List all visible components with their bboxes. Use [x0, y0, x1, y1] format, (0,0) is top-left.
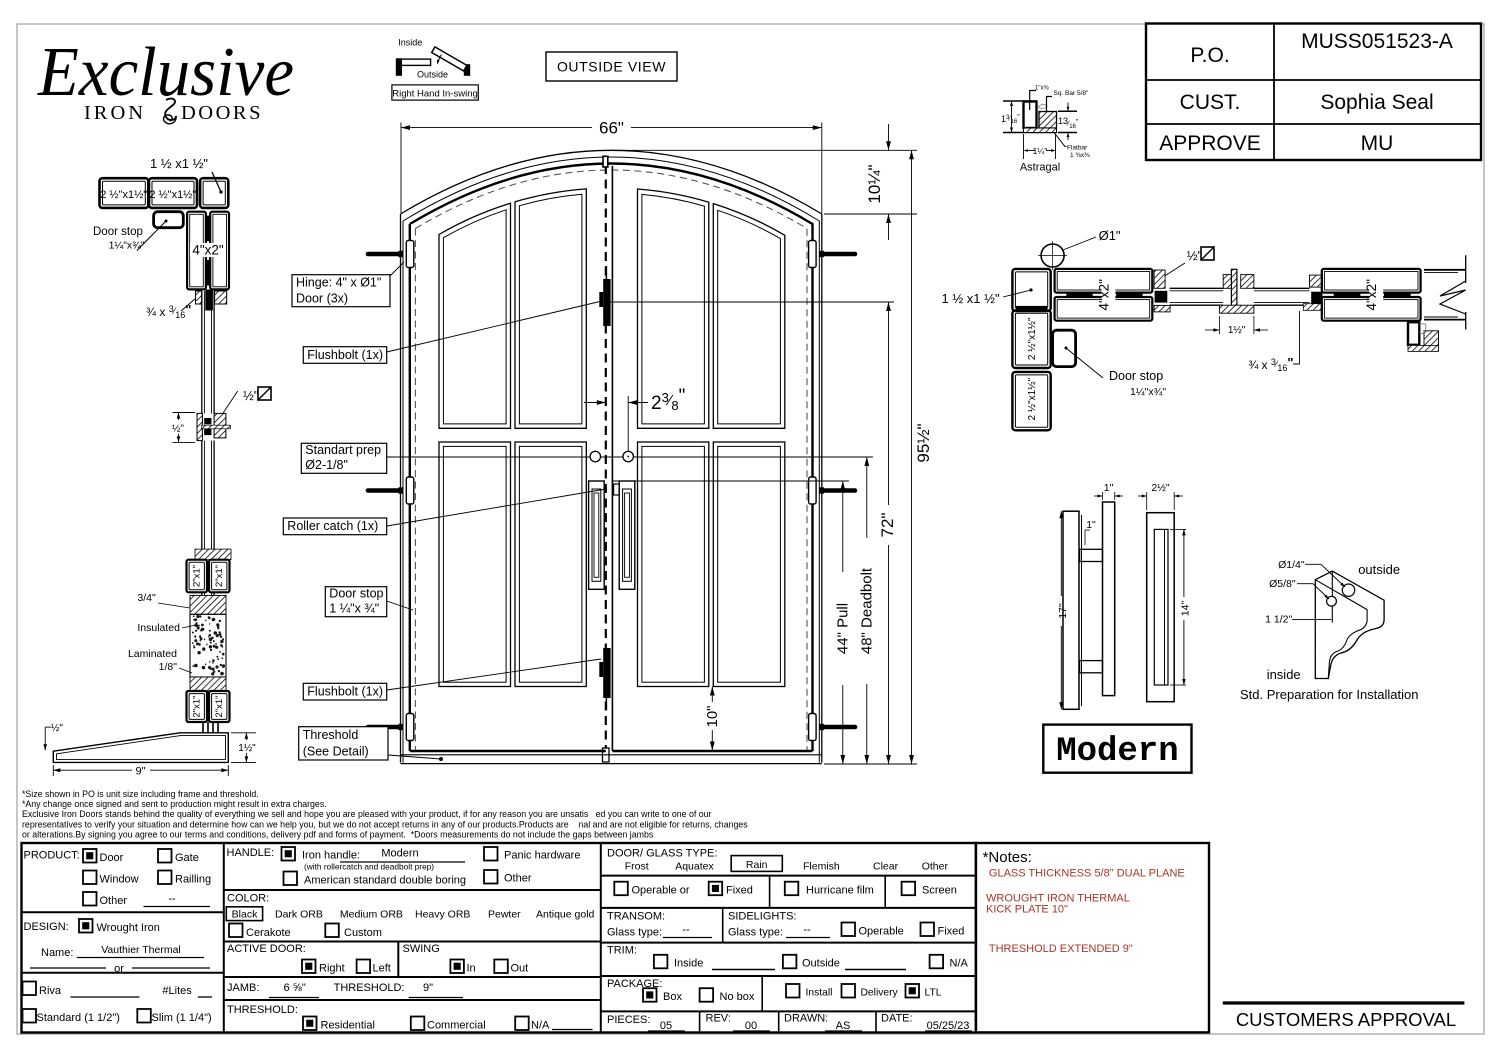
svg-text:Ø1/4": Ø1/4" — [1278, 559, 1305, 571]
svg-text:Hinge: 4" x Ø1": Hinge: 4" x Ø1" — [296, 275, 381, 289]
svg-text:2 ½"x1½": 2 ½"x1½" — [1027, 377, 1038, 420]
svg-text:*Any change once signed and se: *Any change once signed and sent to prod… — [22, 799, 327, 809]
svg-text:1 1/2": 1 1/2" — [1265, 614, 1292, 626]
svg-text:Outside: Outside — [417, 70, 448, 80]
svg-text:American standard double borin: American standard double boring — [304, 875, 466, 887]
svg-text:Roller catch (1x): Roller catch (1x) — [287, 519, 378, 533]
svg-text:OUTSIDE VIEW: OUTSIDE VIEW — [557, 59, 666, 75]
svg-text:inside: inside — [1267, 667, 1301, 682]
svg-text:Outside: Outside — [802, 958, 840, 970]
svg-text:Left: Left — [373, 963, 391, 975]
svg-text:½": ½" — [51, 723, 63, 734]
svg-text:Clear: Clear — [873, 861, 899, 873]
svg-text:Gate: Gate — [175, 852, 199, 864]
svg-text:Cerakote: Cerakote — [246, 927, 291, 939]
svg-text:Install: Install — [806, 988, 833, 999]
svg-text:Aquatex: Aquatex — [675, 861, 714, 873]
svg-text:COLOR:: COLOR: — [227, 893, 269, 905]
svg-text:1": 1" — [1104, 482, 1114, 494]
svg-text:THRESHOLD EXTENDED 9": THRESHOLD EXTENDED 9" — [989, 943, 1133, 955]
svg-text:KICK PLATE 10": KICK PLATE 10" — [986, 904, 1068, 916]
svg-text:Standard (1 1/2"): Standard (1 1/2") — [37, 1012, 120, 1024]
svg-text:05/25/23: 05/25/23 — [927, 1020, 970, 1032]
svg-text:Commercial: Commercial — [427, 1020, 486, 1032]
svg-text:(See Detail): (See Detail) — [303, 745, 369, 759]
svg-text:1"x⅜: 1"x⅜ — [1035, 86, 1049, 92]
svg-text:72": 72" — [878, 513, 897, 538]
svg-text:N/A: N/A — [531, 1020, 550, 1032]
svg-text:1¼"x¾": 1¼"x¾" — [1130, 386, 1166, 398]
svg-text:10": 10" — [704, 705, 721, 727]
svg-text:Name:: Name: — [41, 947, 73, 959]
svg-text:Inside: Inside — [674, 958, 703, 970]
svg-text:Right Hand In-swing: Right Hand In-swing — [392, 88, 478, 99]
svg-text:3/4": 3/4" — [137, 592, 156, 604]
svg-text:or: or — [114, 963, 124, 975]
svg-text:Fixed: Fixed — [726, 885, 753, 897]
svg-text:1¼"x¾": 1¼"x¾" — [109, 240, 145, 252]
svg-text:Rain: Rain — [746, 859, 768, 871]
svg-text:1½": 1½" — [238, 743, 256, 754]
svg-text:Frost: Frost — [625, 861, 649, 873]
svg-text:Glass type:: Glass type: — [607, 927, 662, 939]
svg-text:Vauthier Thermal: Vauthier Thermal — [101, 944, 181, 956]
svg-text:Ø2-1/8": Ø2-1/8" — [305, 458, 348, 472]
svg-text:2"x1": 2"x1" — [214, 565, 225, 587]
svg-text:2"x1": 2"x1" — [214, 695, 225, 717]
svg-text:Dark ORB: Dark ORB — [275, 908, 323, 920]
svg-text:1 ½ x1 ½": 1 ½ x1 ½" — [150, 156, 208, 171]
svg-text:Door stop: Door stop — [93, 226, 143, 238]
svg-text:Astragal: Astragal — [1020, 162, 1060, 174]
svg-text:ACTIVE DOOR:: ACTIVE DOOR: — [227, 943, 306, 955]
svg-text:2 ½"x1½": 2 ½"x1½" — [149, 189, 196, 201]
svg-text:APPROVE: APPROVE — [1159, 132, 1261, 155]
svg-text:*Notes:: *Notes: — [983, 849, 1032, 866]
svg-text:Hurricane film: Hurricane film — [806, 885, 874, 897]
svg-text:CUST.: CUST. — [1180, 91, 1241, 114]
svg-text:14": 14" — [1180, 601, 1192, 617]
svg-text:1½": 1½" — [1228, 325, 1246, 336]
svg-text:THRESHOLD:: THRESHOLD: — [227, 1004, 298, 1016]
svg-text:6 ⅝": 6 ⅝" — [284, 982, 306, 994]
svg-text:4"x2": 4"x2" — [1096, 279, 1111, 311]
svg-text:LTL: LTL — [925, 988, 942, 999]
svg-text:Delivery: Delivery — [861, 988, 899, 999]
svg-text:No box: No box — [720, 991, 755, 1003]
svg-text:--: -- — [803, 924, 811, 936]
svg-text:DOORS: DOORS — [181, 102, 263, 124]
svg-text:Medium ORB: Medium ORB — [340, 908, 403, 920]
svg-text:2½": 2½" — [1151, 482, 1170, 494]
svg-text:66": 66" — [599, 119, 624, 138]
svg-text:Operable or: Operable or — [632, 885, 690, 897]
svg-text:CUSTOMERS APPROVAL: CUSTOMERS APPROVAL — [1236, 1009, 1456, 1030]
svg-text:Residential: Residential — [321, 1020, 375, 1032]
svg-text:Fixed: Fixed — [938, 926, 965, 938]
svg-text:Wrought Iron: Wrought Iron — [97, 922, 160, 934]
svg-text:Flushbolt (1x): Flushbolt (1x) — [307, 348, 383, 362]
svg-text:Right: Right — [319, 963, 345, 975]
svg-text:MU: MU — [1361, 132, 1394, 155]
svg-text:MUSS051523-A: MUSS051523-A — [1301, 30, 1453, 53]
svg-text:10¼": 10¼" — [865, 164, 884, 203]
svg-text:P.O.: P.O. — [1190, 44, 1229, 67]
svg-text:Sq. Bar 5/8": Sq. Bar 5/8" — [1054, 90, 1090, 97]
svg-text:4"x2": 4"x2" — [1364, 279, 1379, 311]
svg-text:#Lites: #Lites — [162, 985, 192, 997]
svg-text:2"x1": 2"x1" — [192, 695, 203, 717]
svg-text:Glass type:: Glass type: — [728, 927, 783, 939]
svg-text:Black: Black — [232, 908, 258, 920]
svg-text:2 ½"x1½": 2 ½"x1½" — [100, 189, 147, 201]
svg-text:Door: Door — [100, 852, 124, 864]
svg-text:In: In — [467, 963, 476, 975]
svg-text:Sophia Seal: Sophia Seal — [1320, 91, 1433, 114]
svg-text:Ø1": Ø1" — [1099, 228, 1121, 243]
svg-text:IRON: IRON — [84, 102, 146, 124]
svg-text:JAMB:: JAMB: — [227, 982, 259, 994]
svg-text:Modern: Modern — [1056, 733, 1178, 771]
svg-text:N/A: N/A — [950, 958, 969, 970]
svg-text:Exclusive Iron Doors stands be: Exclusive Iron Doors stands behind the q… — [22, 809, 712, 819]
svg-text:2"x1": 2"x1" — [192, 565, 203, 587]
svg-text:AS: AS — [836, 1020, 851, 1032]
svg-text:Railling: Railling — [175, 874, 211, 886]
svg-text:9": 9" — [135, 766, 145, 778]
svg-text:Insulated: Insulated — [137, 622, 180, 634]
svg-text:1 ⅜x⅜: 1 ⅜x⅜ — [1070, 152, 1090, 159]
svg-text:48" Deadbolt: 48" Deadbolt — [859, 567, 876, 654]
svg-text:Exclusive: Exclusive — [37, 34, 294, 111]
svg-text:Pewter: Pewter — [488, 908, 521, 920]
svg-text:DATE:: DATE: — [881, 1013, 913, 1025]
svg-text:Other: Other — [100, 895, 128, 907]
svg-text:*Size shown in PO is unit size: *Size shown in PO is unit size including… — [22, 789, 259, 799]
svg-text:17": 17" — [1057, 603, 1069, 619]
svg-text:or alterations.By signing you: or alterations.By signing you agree to o… — [22, 829, 654, 839]
svg-text:Custom: Custom — [344, 927, 382, 939]
svg-text:Other: Other — [922, 861, 949, 873]
svg-text:Screen: Screen — [922, 885, 957, 897]
svg-text:05: 05 — [660, 1020, 672, 1032]
svg-text:½": ½" — [172, 424, 184, 435]
svg-text:Flemish: Flemish — [803, 861, 840, 873]
svg-text:9": 9" — [423, 982, 433, 994]
svg-text:1 ½ x1 ½": 1 ½ x1 ½" — [942, 291, 1000, 306]
svg-text:Standart prep: Standart prep — [305, 443, 381, 457]
svg-text:Riva: Riva — [39, 985, 62, 997]
svg-text:1": 1" — [1086, 519, 1096, 531]
svg-text:Operable: Operable — [859, 926, 904, 938]
svg-text:--: -- — [682, 924, 690, 936]
svg-text:Window: Window — [100, 874, 139, 886]
svg-text:(with rollercatch and deadbolt: (with rollercatch and deadbolt prep) — [304, 862, 434, 872]
svg-text:Slim (1 1/4"): Slim (1 1/4") — [152, 1012, 212, 1024]
svg-text:½": ½" — [243, 388, 259, 403]
svg-text:SIDELIGHTS:: SIDELIGHTS: — [728, 911, 796, 923]
svg-text:GLASS THICKNESS 5/8" DUAL PLAN: GLASS THICKNESS 5/8" DUAL PLANE — [989, 868, 1185, 880]
svg-text:1/8": 1/8" — [159, 661, 178, 673]
svg-text:Other: Other — [504, 873, 532, 885]
svg-text:representatives to verify your: representatives to verify your situation… — [22, 819, 748, 829]
svg-text:Box: Box — [663, 991, 682, 1003]
svg-text:SWING: SWING — [403, 943, 440, 955]
svg-text:PIECES:: PIECES: — [607, 1014, 650, 1026]
svg-text:Antique gold: Antique gold — [536, 908, 595, 920]
svg-text:Door (3x): Door (3x) — [296, 291, 348, 305]
svg-text:95½": 95½" — [914, 423, 933, 462]
svg-text:PRODUCT:: PRODUCT: — [24, 850, 80, 862]
svg-text:THRESHOLD:: THRESHOLD: — [334, 982, 405, 994]
svg-text:DESIGN:: DESIGN: — [24, 921, 69, 933]
svg-text:TRIM:: TRIM: — [607, 945, 637, 957]
svg-text:Threshold: Threshold — [303, 728, 359, 742]
svg-text:Door stop: Door stop — [329, 587, 383, 601]
svg-text:Panic hardware: Panic hardware — [504, 850, 580, 862]
svg-text:--: -- — [168, 893, 176, 905]
svg-text:1¼": 1¼" — [1033, 146, 1048, 156]
svg-text:Iron handle:: Iron handle: — [302, 850, 360, 862]
svg-text:00: 00 — [745, 1020, 757, 1032]
svg-text:Std. Preparation for Installat: Std. Preparation for Installation — [1240, 687, 1419, 702]
svg-text:DRAWN:: DRAWN: — [784, 1013, 828, 1025]
svg-text:44" Pull: 44" Pull — [835, 603, 852, 654]
svg-text:Door stop: Door stop — [1109, 369, 1163, 383]
svg-text:Laminated: Laminated — [128, 648, 177, 660]
svg-text:REV:: REV: — [706, 1013, 731, 1025]
svg-text:Ø5/8": Ø5/8" — [1269, 578, 1296, 590]
svg-text:4"x2": 4"x2" — [192, 243, 224, 258]
svg-text:Out: Out — [511, 963, 529, 975]
svg-text:2 ½"x1½": 2 ½"x1½" — [1027, 317, 1038, 360]
svg-text:TRANSOM:: TRANSOM: — [607, 911, 665, 923]
svg-text:Inside: Inside — [398, 38, 422, 48]
svg-text:Flatbar: Flatbar — [1067, 145, 1088, 152]
svg-text:HANDLE:: HANDLE: — [227, 847, 275, 859]
svg-text:1 ¼"x ¾": 1 ¼"x ¾" — [329, 602, 379, 616]
svg-text:outside: outside — [1358, 562, 1400, 577]
svg-text:Flushbolt (1x): Flushbolt (1x) — [307, 685, 383, 699]
svg-text:Heavy ORB: Heavy ORB — [415, 908, 470, 920]
svg-text:DOOR/ GLASS TYPE:: DOOR/ GLASS TYPE: — [607, 848, 717, 860]
svg-text:Modern: Modern — [381, 848, 418, 860]
